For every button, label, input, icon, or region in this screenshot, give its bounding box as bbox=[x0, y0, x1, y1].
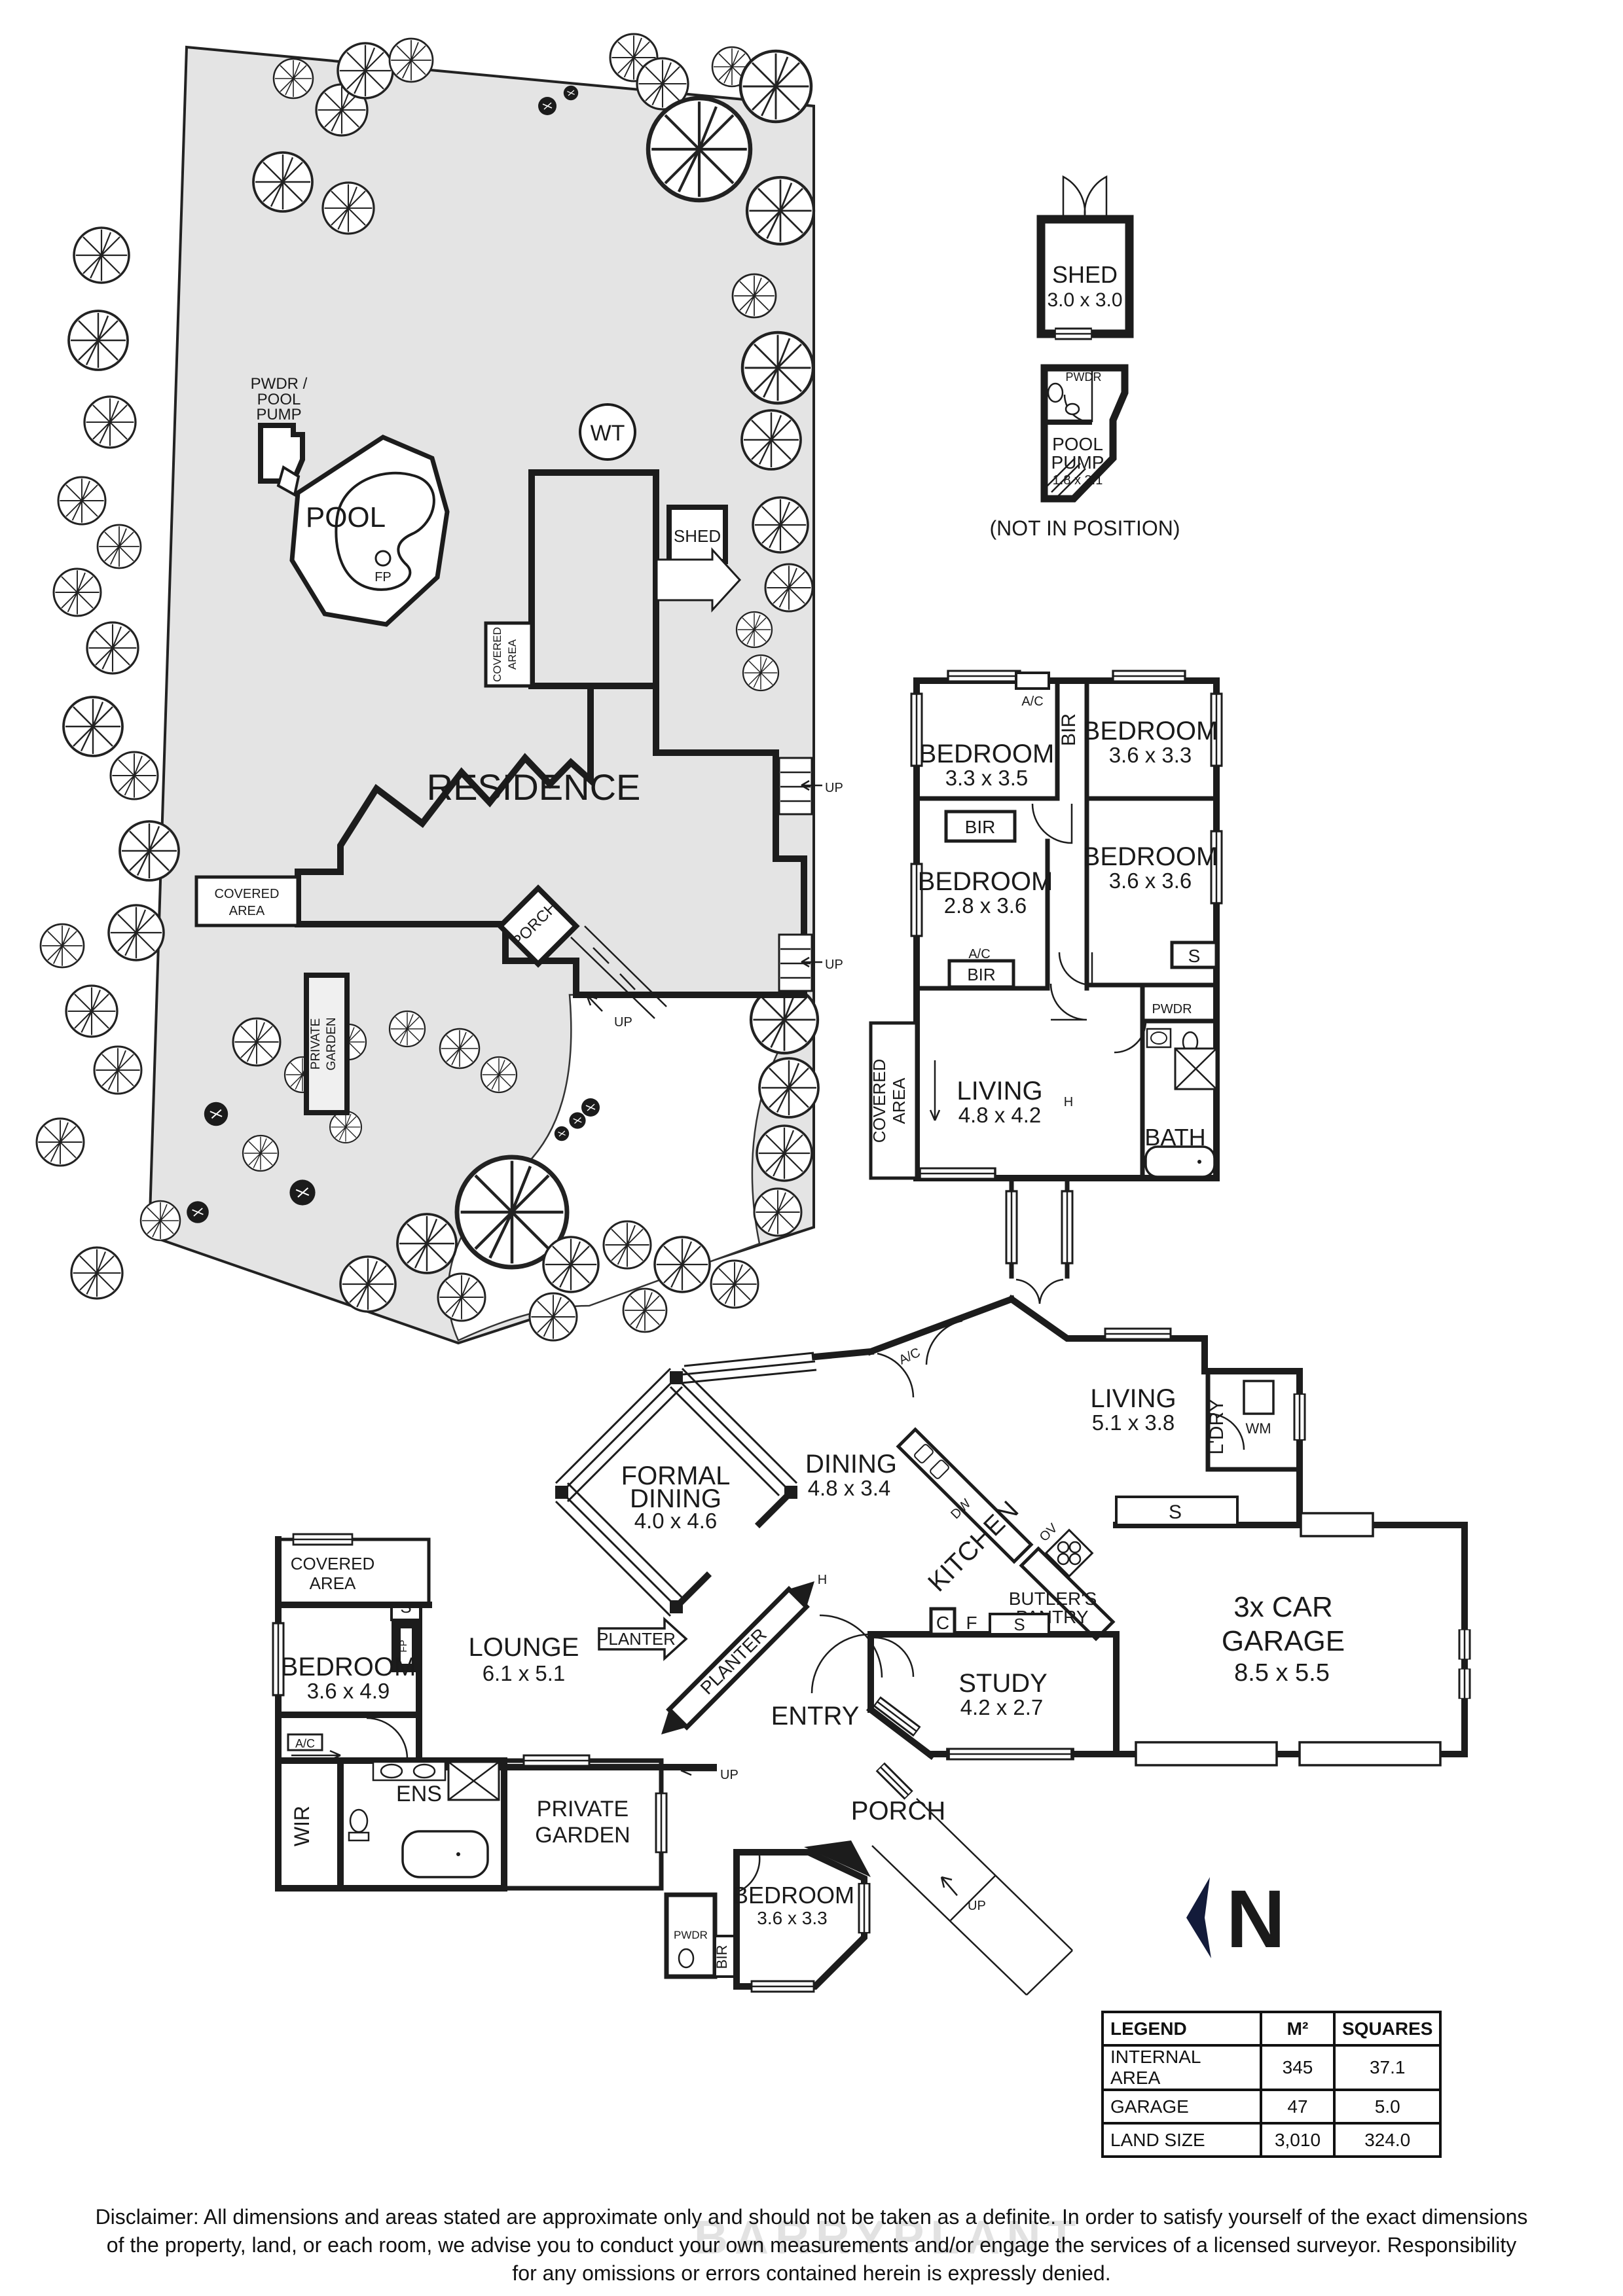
svg-text:BIR: BIR bbox=[1058, 713, 1080, 746]
svg-text:S: S bbox=[1188, 946, 1201, 966]
svg-text:UP: UP bbox=[614, 1015, 632, 1030]
svg-text:UP: UP bbox=[825, 781, 843, 795]
svg-text:3.6 x 4.9: 3.6 x 4.9 bbox=[307, 1679, 390, 1703]
residence-label: RESIDENCE bbox=[427, 766, 641, 808]
svg-text:3.0 x 3.0: 3.0 x 3.0 bbox=[1047, 289, 1122, 311]
svg-text:2.8 x 3.6: 2.8 x 3.6 bbox=[944, 893, 1027, 918]
legend-header: LEGEND bbox=[1103, 2012, 1261, 2045]
fp-label: FP bbox=[374, 570, 392, 584]
svg-text:S: S bbox=[1169, 1501, 1182, 1523]
svg-text:6.1 x 5.1: 6.1 x 5.1 bbox=[483, 1661, 566, 1685]
svg-text:WM: WM bbox=[1245, 1420, 1271, 1437]
svg-text:GARDEN: GARDEN bbox=[325, 1017, 338, 1070]
not-in-position-note: (NOT IN POSITION) bbox=[990, 516, 1180, 540]
squares-header: SQUARES bbox=[1334, 2012, 1440, 2045]
svg-text:GARDEN: GARDEN bbox=[535, 1823, 630, 1848]
svg-text:BUTLER'S: BUTLER'S bbox=[1009, 1588, 1097, 1609]
svg-text:BEDROOM: BEDROOM bbox=[1083, 842, 1218, 871]
bath-fixtures bbox=[1146, 1029, 1216, 1177]
svg-text:3.6 x 3.6: 3.6 x 3.6 bbox=[1109, 869, 1192, 893]
svg-text:DINING: DINING bbox=[805, 1450, 897, 1479]
site-plan: PWDR / POOL PUMP POOL FP WT RESIDENCE SH… bbox=[37, 34, 843, 1343]
svg-text:FP: FP bbox=[398, 1640, 409, 1652]
svg-text:GARAGE: GARAGE bbox=[1222, 1625, 1345, 1657]
svg-text:A/C: A/C bbox=[897, 1346, 923, 1368]
legend-row-land-size: LAND SIZE 3,010 324.0 bbox=[1103, 2123, 1440, 2157]
svg-text:LIVING: LIVING bbox=[1090, 1384, 1176, 1413]
svg-text:3.3 x 3.5: 3.3 x 3.5 bbox=[945, 766, 1029, 790]
svg-text:LOUNGE: LOUNGE bbox=[469, 1633, 579, 1662]
svg-text:PWDR: PWDR bbox=[674, 1929, 708, 1941]
shed-detail: SHED 3.0 x 3.0 bbox=[1041, 177, 1129, 339]
svg-text:4.2 x 2.7: 4.2 x 2.7 bbox=[960, 1695, 1044, 1719]
pool-label: POOL bbox=[306, 501, 386, 533]
svg-text:3.6 x 3.3: 3.6 x 3.3 bbox=[1109, 743, 1192, 767]
svg-text:PORCH: PORCH bbox=[851, 1797, 945, 1825]
porch: PORCH UP bbox=[851, 1763, 1072, 1995]
disclaimer: Disclaimer: All dimensions and areas sta… bbox=[0, 2203, 1623, 2288]
svg-text:COVERED: COVERED bbox=[491, 627, 503, 682]
disclaimer-line-3: for any omissions or errors contained he… bbox=[0, 2259, 1623, 2287]
svg-text:PWDR: PWDR bbox=[1066, 370, 1102, 384]
disclaimer-line-1: Disclaimer: All dimensions and areas sta… bbox=[0, 2203, 1623, 2231]
svg-text:F: F bbox=[966, 1613, 977, 1633]
legend-row-internal-area: INTERNAL AREA 345 37.1 bbox=[1103, 2045, 1440, 2090]
outbuildings-detail: SHED 3.0 x 3.0 PWDR POOL PUMP 1.8 x 3.1 … bbox=[990, 177, 1180, 540]
svg-text:BEDROOM: BEDROOM bbox=[918, 867, 1053, 896]
main-floor-plan: FORMAL DINING 4.0 x 4.6 PLANTER A/C DINI… bbox=[273, 1299, 1470, 1995]
private-garden: PRIVATE GARDEN bbox=[504, 1755, 666, 1888]
legend-row-garage: GARAGE 47 5.0 bbox=[1103, 2090, 1440, 2123]
svg-text:BIR: BIR bbox=[967, 965, 995, 984]
svg-text:4.8 x 3.4: 4.8 x 3.4 bbox=[808, 1476, 891, 1500]
m2-header: M² bbox=[1261, 2012, 1334, 2045]
svg-text:COVERED: COVERED bbox=[869, 1059, 889, 1143]
study: C F S STUDY 4.2 x 2.7 bbox=[871, 1609, 1116, 1759]
bedroom-wing-plan: COVERED AREA A/C BEDROOM 3.3 x 3.5 BIR B… bbox=[869, 671, 1222, 1304]
bedroom6-block: PWDR BIR BEDROOM 3.6 x 3.3 bbox=[666, 1840, 871, 1992]
site-shed-label: SHED bbox=[674, 526, 721, 546]
pool-pump-detail: PWDR POOL PUMP 1.8 x 3.1 bbox=[1044, 368, 1125, 499]
north-label: N bbox=[1226, 1874, 1285, 1965]
svg-text:PRIVATE: PRIVATE bbox=[537, 1797, 629, 1821]
svg-text:WIR: WIR bbox=[290, 1806, 314, 1846]
svg-text:UP: UP bbox=[825, 958, 843, 972]
laundry: L'DRY WM bbox=[1206, 1371, 1300, 1469]
shed-detail-label: SHED bbox=[1052, 261, 1118, 288]
svg-text:5.1 x 3.8: 5.1 x 3.8 bbox=[1092, 1410, 1175, 1435]
svg-text:PLANTER: PLANTER bbox=[697, 1624, 771, 1698]
pwdr-pool-pump-label: PWDR / bbox=[251, 375, 308, 393]
lounge: S FP LOUNGE 6.1 x 5.1 UP bbox=[392, 1584, 739, 1782]
svg-text:BIR: BIR bbox=[714, 1945, 730, 1969]
north-arrow-icon bbox=[1186, 1877, 1211, 1958]
svg-text:C: C bbox=[936, 1613, 949, 1633]
svg-text:STUDY: STUDY bbox=[958, 1669, 1048, 1698]
svg-text:BEDROOM: BEDROOM bbox=[281, 1653, 416, 1681]
svg-text:ENS: ENS bbox=[396, 1782, 442, 1806]
legend-header-row: LEGEND M² SQUARES bbox=[1103, 2012, 1440, 2045]
entry: PLANTER H ENTRY bbox=[661, 1573, 882, 1734]
svg-text:A/C: A/C bbox=[968, 947, 990, 961]
svg-text:L'DRY: L'DRY bbox=[1206, 1399, 1228, 1454]
site-water-tank: WT bbox=[580, 404, 635, 459]
svg-text:8.5 x 5.5: 8.5 x 5.5 bbox=[1234, 1659, 1330, 1687]
svg-text:4.0 x 4.6: 4.0 x 4.6 bbox=[634, 1509, 718, 1533]
svg-text:A/C: A/C bbox=[1021, 694, 1043, 709]
main-covered-area: COVERED AREA bbox=[278, 1534, 429, 1605]
svg-text:PUMP: PUMP bbox=[1051, 452, 1104, 473]
svg-text:H: H bbox=[1064, 1095, 1073, 1109]
legend-table: LEGEND M² SQUARES INTERNAL AREA 345 37.1… bbox=[1101, 2011, 1442, 2158]
svg-text:LIVING: LIVING bbox=[957, 1077, 1042, 1105]
svg-text:AREA: AREA bbox=[506, 639, 519, 670]
svg-text:BIR: BIR bbox=[965, 817, 996, 837]
svg-text:COVERED: COVERED bbox=[215, 887, 280, 901]
svg-text:BEDROOM: BEDROOM bbox=[733, 1882, 854, 1909]
svg-text:ENTRY: ENTRY bbox=[771, 1702, 860, 1731]
svg-text:PRIVATE: PRIVATE bbox=[309, 1018, 323, 1069]
svg-text:BEDROOM: BEDROOM bbox=[1083, 717, 1218, 745]
svg-text:AREA: AREA bbox=[229, 904, 265, 918]
svg-text:H: H bbox=[818, 1573, 827, 1587]
garage: 3x CAR GARAGE 8.5 x 5.5 bbox=[1116, 1513, 1470, 1765]
svg-text:3x CAR: 3x CAR bbox=[1233, 1591, 1333, 1623]
north-arrow: N bbox=[1186, 1874, 1285, 1965]
svg-text:UP: UP bbox=[720, 1768, 739, 1782]
wt-label: WT bbox=[591, 421, 625, 446]
svg-text:PUMP: PUMP bbox=[256, 406, 301, 423]
svg-text:PWDR: PWDR bbox=[1152, 1002, 1192, 1016]
svg-text:4.8 x 4.2: 4.8 x 4.2 bbox=[958, 1103, 1042, 1127]
svg-text:PLANTER: PLANTER bbox=[597, 1629, 676, 1649]
svg-text:UP: UP bbox=[968, 1899, 986, 1913]
disclaimer-line-2: of the property, land, or each room, we … bbox=[0, 2231, 1623, 2259]
svg-text:S: S bbox=[1013, 1615, 1025, 1634]
wing-covered-area: COVERED AREA bbox=[869, 1023, 939, 1178]
svg-text:3.6 x 3.3: 3.6 x 3.3 bbox=[757, 1908, 827, 1928]
svg-text:BEDROOM: BEDROOM bbox=[919, 740, 1055, 768]
svg-text:COVERED: COVERED bbox=[291, 1554, 375, 1573]
svg-text:A/C: A/C bbox=[295, 1737, 315, 1750]
svg-text:AREA: AREA bbox=[889, 1077, 909, 1124]
svg-text:POOL: POOL bbox=[1052, 434, 1103, 454]
svg-text:AREA: AREA bbox=[310, 1573, 356, 1593]
floorplan-canvas: PWDR / POOL PUMP POOL FP WT RESIDENCE SH… bbox=[0, 0, 1623, 2296]
